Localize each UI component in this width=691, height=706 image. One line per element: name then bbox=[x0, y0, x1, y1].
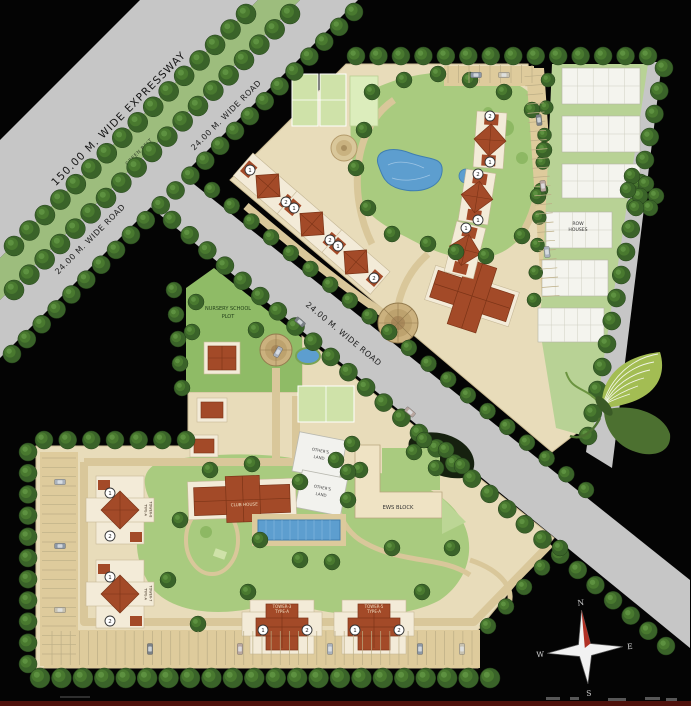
tree-icon bbox=[536, 142, 552, 158]
tree-icon bbox=[322, 348, 340, 366]
tree-highlight bbox=[625, 223, 630, 228]
unit-badge: 2 bbox=[369, 273, 379, 283]
tree-highlight bbox=[654, 85, 659, 90]
tower-8-label-line2: TYPE-A bbox=[143, 503, 147, 516]
car-roof bbox=[502, 73, 507, 77]
tree-highlight bbox=[502, 503, 507, 508]
tree-highlight bbox=[193, 54, 199, 60]
tree-icon bbox=[539, 450, 555, 466]
tree-icon bbox=[421, 356, 437, 372]
unit-badge: 1 bbox=[105, 488, 115, 498]
tree-highlight bbox=[463, 50, 468, 55]
tree-highlight bbox=[255, 290, 260, 295]
tree-highlight bbox=[641, 179, 646, 184]
car-icon bbox=[327, 644, 332, 655]
tree-icon bbox=[348, 160, 364, 176]
tree-icon bbox=[430, 66, 446, 82]
tree-highlight bbox=[185, 170, 190, 175]
tree-highlight bbox=[207, 185, 212, 190]
tree-icon bbox=[392, 47, 410, 65]
tree-icon bbox=[66, 174, 86, 194]
tree-highlight bbox=[327, 557, 332, 562]
tree-highlight bbox=[184, 230, 189, 235]
tree-highlight bbox=[413, 427, 418, 432]
tree-highlight bbox=[424, 359, 429, 364]
tree-icon bbox=[624, 168, 640, 184]
tree-highlight bbox=[157, 434, 162, 439]
tree-icon bbox=[167, 181, 185, 199]
tree-icon bbox=[19, 485, 37, 503]
tree-highlight bbox=[207, 84, 213, 90]
tree-highlight bbox=[146, 146, 152, 152]
tree-icon bbox=[384, 226, 400, 242]
tree-highlight bbox=[530, 296, 534, 300]
tree-highlight bbox=[345, 296, 350, 301]
tree-icon bbox=[181, 167, 199, 185]
tree-icon bbox=[65, 219, 85, 239]
tree-icon bbox=[480, 618, 496, 634]
tree-icon bbox=[394, 668, 414, 688]
wing-roof bbox=[130, 532, 142, 542]
tree-highlight bbox=[270, 672, 276, 678]
tree-icon bbox=[223, 668, 243, 688]
tree-highlight bbox=[34, 672, 40, 678]
tree-highlight bbox=[22, 510, 27, 515]
tree-icon bbox=[612, 266, 630, 284]
tree-highlight bbox=[499, 87, 504, 92]
tree-icon bbox=[438, 442, 454, 458]
tree-icon bbox=[19, 507, 37, 525]
tree-icon bbox=[263, 229, 279, 245]
tree-icon bbox=[498, 500, 516, 518]
tree-icon bbox=[82, 431, 100, 449]
tree-highlight bbox=[533, 191, 538, 196]
tree-icon bbox=[401, 340, 417, 356]
tree-icon bbox=[646, 105, 664, 123]
tree-icon bbox=[202, 462, 218, 478]
tree-icon bbox=[30, 668, 50, 688]
tree-icon bbox=[159, 81, 179, 101]
tree-highlight bbox=[649, 108, 654, 113]
tree-highlight bbox=[200, 155, 205, 160]
tree-highlight bbox=[540, 131, 544, 135]
tree-highlight bbox=[284, 8, 290, 14]
tree-highlight bbox=[420, 672, 426, 678]
tree-highlight bbox=[81, 274, 86, 279]
badge-number: 2 bbox=[108, 534, 112, 540]
tree-icon bbox=[19, 634, 37, 652]
tree-highlight bbox=[485, 50, 490, 55]
tree-icon bbox=[190, 50, 210, 70]
tree-icon bbox=[174, 380, 190, 396]
tree-icon bbox=[198, 241, 216, 259]
tree-highlight bbox=[155, 200, 160, 205]
tree-highlight bbox=[590, 580, 595, 585]
nursery-label-2: PLOT bbox=[222, 314, 236, 320]
tree-highlight bbox=[404, 343, 409, 348]
tree-icon bbox=[283, 245, 299, 261]
tree-icon bbox=[266, 668, 286, 688]
tree-icon bbox=[328, 452, 344, 468]
badge-number: 1 bbox=[476, 218, 480, 224]
car-roof bbox=[545, 249, 549, 254]
tree-icon bbox=[342, 293, 358, 309]
tree-highlight bbox=[419, 435, 424, 440]
tree-highlight bbox=[187, 327, 192, 332]
tree-icon bbox=[59, 431, 77, 449]
unit-badge: 1 bbox=[485, 157, 495, 167]
car-icon bbox=[147, 644, 152, 655]
car-roof bbox=[148, 647, 152, 652]
tree-highlight bbox=[409, 447, 414, 452]
tree-highlight bbox=[77, 672, 83, 678]
tree-highlight bbox=[51, 304, 56, 309]
tree-icon bbox=[159, 668, 179, 688]
tree-icon bbox=[152, 196, 170, 214]
tree-highlight bbox=[266, 232, 271, 237]
badge-number: 2 bbox=[372, 276, 376, 282]
tree-highlight bbox=[398, 672, 404, 678]
tree-highlight bbox=[343, 367, 348, 372]
tree-highlight bbox=[484, 488, 489, 493]
badge-number: 1 bbox=[292, 206, 296, 212]
tree-icon bbox=[357, 378, 375, 396]
tree-highlight bbox=[116, 132, 122, 138]
tree-highlight bbox=[22, 446, 27, 451]
tree-highlight bbox=[162, 672, 168, 678]
tree-highlight bbox=[6, 348, 11, 353]
tree-icon bbox=[35, 249, 55, 269]
car-icon bbox=[459, 644, 464, 655]
tree-highlight bbox=[238, 54, 244, 60]
tree-highlight bbox=[205, 465, 210, 470]
tree-highlight bbox=[575, 50, 580, 55]
tree-icon bbox=[416, 668, 436, 688]
tree-icon bbox=[572, 47, 590, 65]
badge-number: 2 bbox=[397, 628, 401, 634]
tree-icon bbox=[460, 387, 476, 403]
tree-highlight bbox=[483, 406, 488, 411]
badge-number: 2 bbox=[108, 619, 112, 625]
tree-icon bbox=[639, 47, 657, 65]
badge-number: 1 bbox=[248, 168, 252, 174]
tree-highlight bbox=[36, 319, 41, 324]
tree-icon bbox=[96, 188, 116, 208]
tree-highlight bbox=[537, 563, 542, 568]
tree-highlight bbox=[259, 96, 264, 101]
tree-highlight bbox=[463, 390, 468, 395]
tree-highlight bbox=[643, 625, 648, 630]
tree-highlight bbox=[501, 602, 506, 607]
tree-icon bbox=[3, 345, 21, 363]
tree-icon bbox=[361, 308, 377, 324]
tree-highlight bbox=[177, 383, 182, 388]
tree-highlight bbox=[22, 552, 27, 557]
tree-icon bbox=[586, 576, 604, 594]
tree-highlight bbox=[644, 131, 649, 136]
tree-highlight bbox=[70, 178, 76, 184]
tree-highlight bbox=[544, 76, 548, 80]
tree-icon bbox=[137, 211, 155, 229]
tree-highlight bbox=[623, 185, 628, 190]
tree-highlight bbox=[125, 229, 130, 234]
tree-icon bbox=[280, 4, 300, 24]
tree-icon bbox=[142, 142, 162, 162]
tree-highlight bbox=[229, 125, 234, 130]
lawn-mound bbox=[516, 152, 528, 164]
tree-icon bbox=[622, 607, 640, 625]
tree-icon bbox=[143, 97, 163, 117]
tree-highlight bbox=[625, 610, 630, 615]
tree-icon bbox=[330, 668, 350, 688]
tree-icon bbox=[236, 4, 256, 24]
tree-highlight bbox=[227, 672, 233, 678]
tree-icon bbox=[19, 464, 37, 482]
tree-icon bbox=[157, 127, 177, 147]
tree-highlight bbox=[130, 161, 136, 167]
tree-icon bbox=[558, 466, 574, 482]
tree-highlight bbox=[184, 672, 190, 678]
tree-icon bbox=[406, 444, 422, 460]
tree-highlight bbox=[84, 207, 90, 213]
tree-highlight bbox=[219, 260, 224, 265]
tree-icon bbox=[18, 330, 36, 348]
tree-highlight bbox=[441, 672, 447, 678]
tree-icon bbox=[137, 668, 157, 688]
tree-icon bbox=[221, 19, 241, 39]
tree-icon bbox=[240, 584, 256, 600]
tree-highlight bbox=[440, 50, 445, 55]
tree-highlight bbox=[639, 154, 644, 159]
tree-icon bbox=[459, 668, 479, 688]
tree-highlight bbox=[162, 85, 168, 91]
tree-icon bbox=[300, 48, 318, 66]
tree-highlight bbox=[363, 203, 368, 208]
tree-highlight bbox=[387, 229, 392, 234]
tree-highlight bbox=[533, 241, 537, 245]
tree-icon bbox=[396, 72, 412, 88]
tree-highlight bbox=[373, 50, 378, 55]
cutoff-caption-fragment bbox=[570, 697, 579, 700]
tree-icon bbox=[340, 464, 356, 480]
tree-icon bbox=[516, 579, 532, 595]
tree-icon bbox=[211, 137, 229, 155]
tree-icon bbox=[287, 668, 307, 688]
tree-highlight bbox=[530, 50, 535, 55]
tree-highlight bbox=[651, 191, 656, 196]
tree-icon bbox=[19, 443, 37, 461]
tree-icon bbox=[219, 65, 239, 85]
tree-icon bbox=[655, 59, 673, 77]
tree-highlight bbox=[22, 574, 27, 579]
tree-icon bbox=[251, 287, 269, 305]
tree-icon bbox=[116, 668, 136, 688]
tree-icon bbox=[50, 190, 70, 210]
unit-badge: 2 bbox=[105, 616, 115, 626]
wing-roof bbox=[130, 616, 142, 626]
tree-highlight bbox=[484, 672, 490, 678]
tree-highlight bbox=[581, 485, 586, 490]
tree-icon bbox=[81, 159, 101, 179]
tree-highlight bbox=[171, 310, 176, 315]
tree-icon bbox=[514, 228, 530, 244]
tree-icon bbox=[340, 492, 356, 508]
car-icon bbox=[55, 607, 66, 612]
tree-highlight bbox=[360, 382, 365, 387]
tree-highlight bbox=[22, 658, 27, 663]
tree-highlight bbox=[611, 292, 616, 297]
tree-highlight bbox=[38, 253, 44, 259]
tennis-courts-lower bbox=[298, 386, 354, 422]
car-icon bbox=[471, 72, 482, 77]
tree-icon bbox=[160, 572, 176, 588]
club-house-label: CLUB HOUSE bbox=[231, 501, 259, 507]
tree-highlight bbox=[519, 519, 524, 524]
tree-highlight bbox=[222, 69, 228, 75]
badge-number: 1 bbox=[488, 160, 492, 166]
tree-icon bbox=[111, 173, 131, 193]
tree-icon bbox=[309, 668, 329, 688]
tree-icon bbox=[440, 371, 456, 387]
compass-s: S bbox=[586, 689, 592, 698]
tree-icon bbox=[130, 431, 148, 449]
tree-icon bbox=[35, 431, 53, 449]
tree-icon bbox=[163, 211, 181, 229]
tree-icon bbox=[170, 331, 186, 347]
cutoff-caption-fragment bbox=[608, 698, 626, 701]
tree-icon bbox=[249, 35, 269, 55]
pool-water bbox=[258, 520, 340, 540]
tree-highlight bbox=[295, 555, 300, 560]
nursery-label: NURSERY SCHOOL bbox=[205, 306, 251, 312]
car-icon bbox=[55, 543, 66, 548]
tree-highlight bbox=[286, 248, 291, 253]
site-plan-screenshot: 150.00 M. WIDE EXPRESSWAY GREEN BELT 24.… bbox=[0, 0, 691, 706]
tower-7-label: TOWER-7 TYPE-A bbox=[143, 585, 152, 603]
tree-icon bbox=[345, 3, 363, 21]
tree-icon bbox=[603, 312, 621, 330]
badge-number: 1 bbox=[336, 244, 340, 250]
tree-highlight bbox=[441, 445, 446, 450]
tree-highlight bbox=[312, 672, 318, 678]
tree-highlight bbox=[451, 247, 456, 252]
tree-icon bbox=[106, 431, 124, 449]
tree-highlight bbox=[466, 473, 471, 478]
tree-highlight bbox=[396, 412, 401, 417]
tree-highlight bbox=[542, 453, 547, 458]
tree-highlight bbox=[147, 101, 153, 107]
unit-badge: 1 bbox=[105, 572, 115, 582]
tree-icon bbox=[62, 286, 80, 304]
tree-icon bbox=[496, 84, 512, 100]
tree-icon bbox=[324, 554, 340, 570]
tree-highlight bbox=[133, 434, 138, 439]
tree-highlight bbox=[522, 438, 527, 443]
tree-highlight bbox=[274, 81, 279, 86]
tree-icon bbox=[234, 272, 252, 290]
unit-badge: 2 bbox=[302, 625, 312, 635]
tree-highlight bbox=[22, 637, 27, 642]
tree-highlight bbox=[180, 434, 185, 439]
tree-highlight bbox=[22, 595, 27, 600]
tree-highlight bbox=[304, 51, 309, 56]
tree-icon bbox=[50, 234, 70, 254]
tree-highlight bbox=[462, 672, 468, 678]
car-roof bbox=[418, 647, 422, 652]
tree-highlight bbox=[555, 543, 560, 548]
tree-highlight bbox=[343, 495, 348, 500]
car-icon bbox=[237, 644, 242, 655]
tree-highlight bbox=[295, 477, 300, 482]
tree-highlight bbox=[418, 50, 423, 55]
tree-icon bbox=[608, 289, 626, 307]
row-house-block bbox=[542, 260, 608, 296]
tree-highlight bbox=[597, 361, 602, 366]
tree-icon bbox=[459, 47, 477, 65]
tree-highlight bbox=[23, 224, 29, 230]
tree-highlight bbox=[517, 231, 522, 236]
tree-highlight bbox=[62, 434, 67, 439]
badge-number: 2 bbox=[476, 172, 480, 178]
tree-highlight bbox=[202, 245, 207, 250]
tree-icon bbox=[347, 47, 365, 65]
car-roof bbox=[328, 647, 332, 652]
tree-icon bbox=[504, 47, 522, 65]
car-icon bbox=[540, 180, 547, 192]
tree-icon bbox=[604, 591, 622, 609]
badge-number: 2 bbox=[284, 200, 288, 206]
tree-highlight bbox=[542, 103, 546, 107]
tree-highlight bbox=[319, 36, 324, 41]
tree-highlight bbox=[39, 209, 45, 215]
tower-3-label-2: TYPE-A bbox=[274, 609, 289, 614]
tree-highlight bbox=[96, 259, 101, 264]
tree-icon bbox=[271, 77, 289, 95]
tree-icon bbox=[248, 322, 264, 338]
tree-highlight bbox=[247, 459, 252, 464]
tree-highlight bbox=[120, 672, 126, 678]
tree-highlight bbox=[169, 285, 174, 290]
tree-icon bbox=[444, 540, 460, 556]
tree-highlight bbox=[209, 39, 215, 45]
tree-highlight bbox=[38, 434, 43, 439]
tree-icon bbox=[617, 47, 635, 65]
tree-highlight bbox=[22, 531, 27, 536]
tree-highlight bbox=[384, 327, 389, 332]
badge-number: 2 bbox=[328, 238, 332, 244]
car-roof bbox=[541, 183, 545, 188]
tree-icon bbox=[188, 96, 208, 116]
practice-green bbox=[350, 76, 378, 126]
tower-7: TOWER-7 TYPE-A bbox=[86, 560, 154, 628]
tree-icon bbox=[578, 482, 594, 498]
tree-highlight bbox=[367, 87, 372, 92]
building-roof bbox=[201, 402, 223, 418]
tree-icon bbox=[205, 35, 225, 55]
tree-icon bbox=[636, 151, 654, 169]
tree-icon bbox=[19, 570, 37, 588]
tree-highlight bbox=[170, 185, 175, 190]
tree-icon bbox=[315, 33, 333, 51]
badge-number: 2 bbox=[305, 628, 309, 634]
tree-icon bbox=[4, 280, 24, 300]
tree-highlight bbox=[325, 351, 330, 356]
tree-icon bbox=[593, 358, 611, 376]
tree-highlight bbox=[519, 582, 524, 587]
tree-highlight bbox=[597, 50, 602, 55]
tree-highlight bbox=[417, 587, 422, 592]
tree-icon bbox=[642, 200, 658, 216]
